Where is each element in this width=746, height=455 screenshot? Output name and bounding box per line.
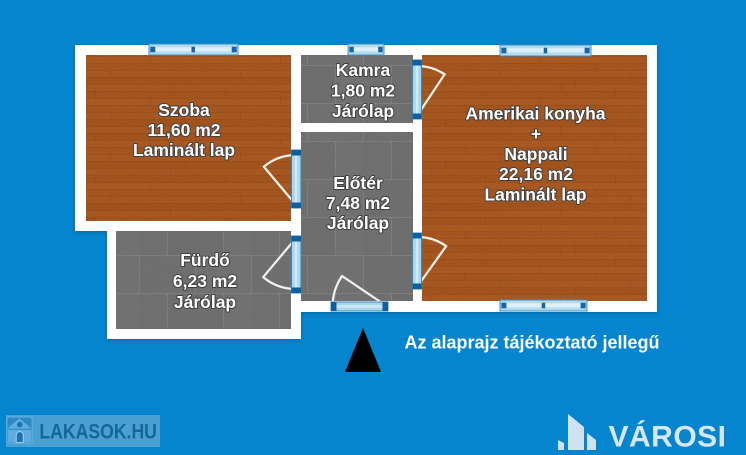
svg-text:11,60 m2: 11,60 m2	[148, 120, 221, 140]
svg-text:1,80 m2: 1,80 m2	[331, 81, 395, 101]
svg-text:Az alaprajz tájékoztató jelleg: Az alaprajz tájékoztató jellegű	[404, 333, 659, 353]
svg-text:Laminált lap: Laminált lap	[133, 140, 235, 160]
svg-text:Laminált lap: Laminált lap	[484, 185, 586, 205]
svg-text:+: +	[531, 124, 541, 144]
svg-text:Járólap: Járólap	[174, 292, 236, 312]
svg-text:7,48 m2: 7,48 m2	[326, 193, 390, 213]
svg-text:22,16 m2: 22,16 m2	[499, 164, 573, 184]
svg-text:Előtér: Előtér	[333, 173, 383, 193]
svg-text:Járólap: Járólap	[327, 213, 389, 233]
svg-text:Fürdő: Fürdő	[180, 250, 230, 270]
svg-text:LAKASOK.HU: LAKASOK.HU	[39, 420, 157, 444]
svg-text:Járólap: Járólap	[332, 101, 394, 121]
svg-text:Kamra: Kamra	[336, 60, 391, 80]
svg-text:Amerikai konyha: Amerikai konyha	[465, 104, 605, 124]
svg-text:6,23 m2: 6,23 m2	[173, 271, 237, 291]
svg-text:Nappali: Nappali	[504, 144, 567, 164]
svg-text:VÁROSI: VÁROSI	[609, 420, 727, 451]
svg-text:Szoba: Szoba	[158, 100, 210, 120]
